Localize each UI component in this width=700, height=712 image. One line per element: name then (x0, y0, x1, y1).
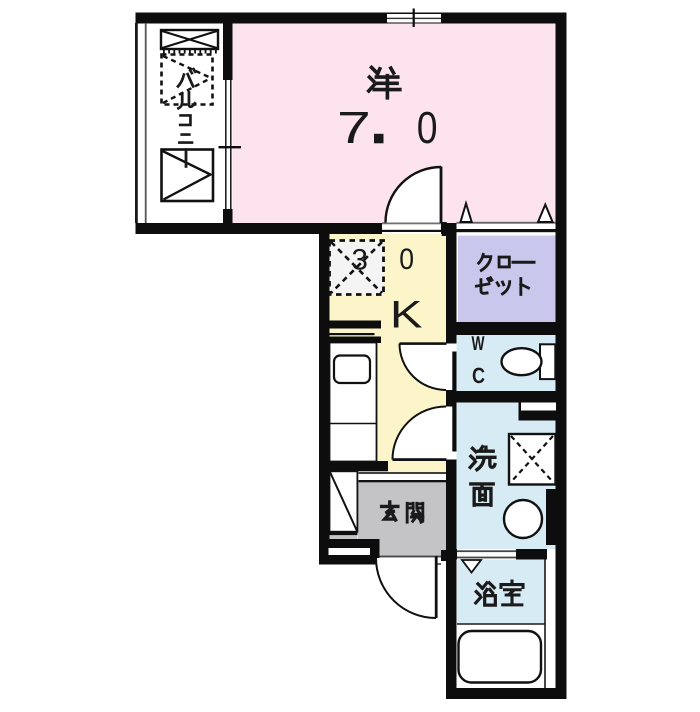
svg-text:W: W (472, 333, 485, 355)
svg-text:K: K (390, 293, 423, 336)
svg-text:0: 0 (417, 102, 438, 153)
svg-text:3: 3 (352, 244, 368, 277)
svg-text:C: C (472, 363, 485, 388)
svg-text:7: 7 (337, 102, 371, 153)
svg-text:0: 0 (399, 243, 414, 276)
